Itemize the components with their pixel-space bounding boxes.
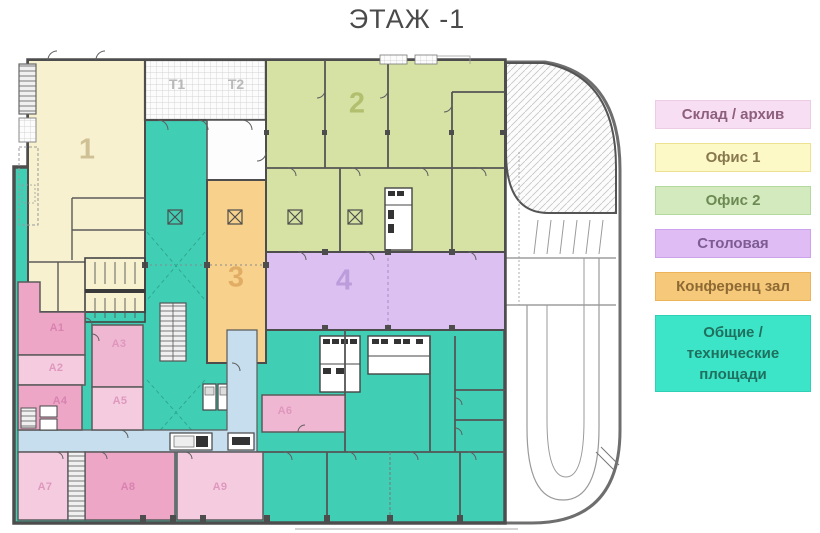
legend-label-dining: Столовая [697,233,768,254]
lobby-area [207,120,266,180]
room-2-area [264,60,505,252]
legend-item-dining: Столовая [655,229,811,258]
room-a2-area [18,355,85,385]
ramp-hatched-area [506,63,616,213]
room-a6-area [262,395,345,432]
floorplan-page: ЭТАЖ -1 [0,0,820,533]
room-1-area [28,60,145,312]
room-a8-area [85,452,175,520]
zone-t1-t2-area [145,60,266,120]
legend-item-conference: Конференц зал [655,272,811,301]
parking-ramp [505,62,620,523]
legend-item-office2: Офис 2 [655,186,811,215]
legend-item-common: Общие / технические площади [655,315,811,392]
room-a3-area [92,325,143,387]
legend-label-office1: Офис 1 [706,147,761,168]
legend-item-storage: Склад / архив [655,100,811,129]
elevator-machines [170,433,254,450]
legend-label-storage: Склад / архив [682,104,785,125]
legend-label-office2: Офис 2 [706,190,761,211]
room-a9-area [177,452,263,520]
legend-label-common: Общие / технические площади [668,322,798,385]
legend-label-conference: Конференц зал [676,276,790,297]
room-a5-area [92,387,143,430]
stair-shaft-bottom [68,452,85,520]
room-a7-area [18,452,68,520]
legend: Склад / архив Офис 1 Офис 2 Столовая Кон… [655,100,811,392]
legend-item-office1: Офис 1 [655,143,811,172]
wc-room-2 [385,188,412,250]
room-4-area [266,249,505,331]
